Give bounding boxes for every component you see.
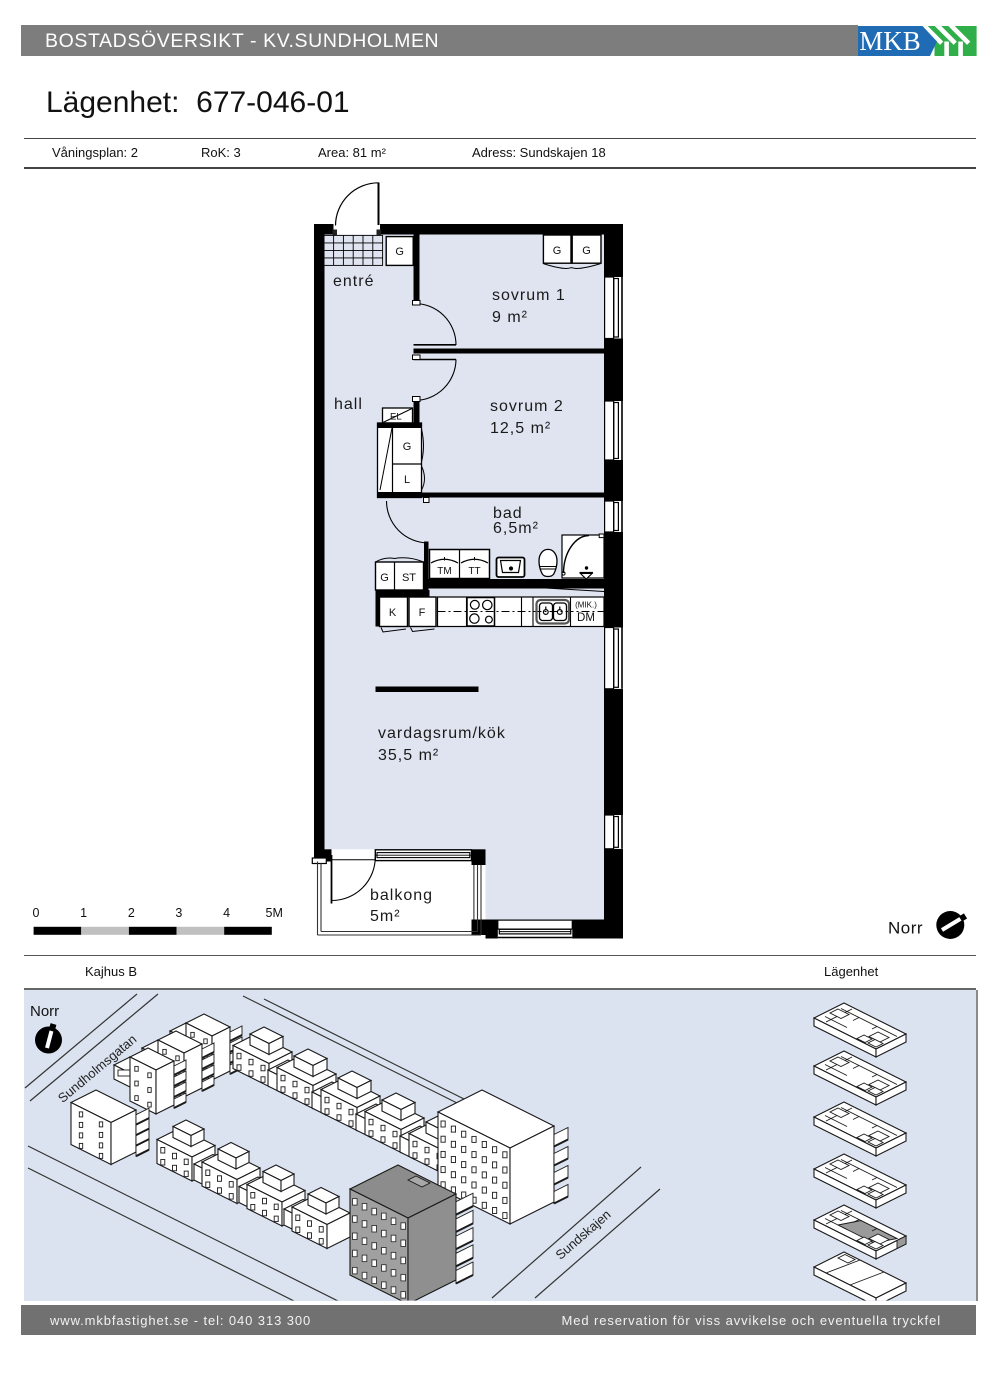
svg-text:Sundskajen: Sundskajen bbox=[552, 1207, 613, 1263]
svg-text:Norr: Norr bbox=[30, 1003, 59, 1020]
